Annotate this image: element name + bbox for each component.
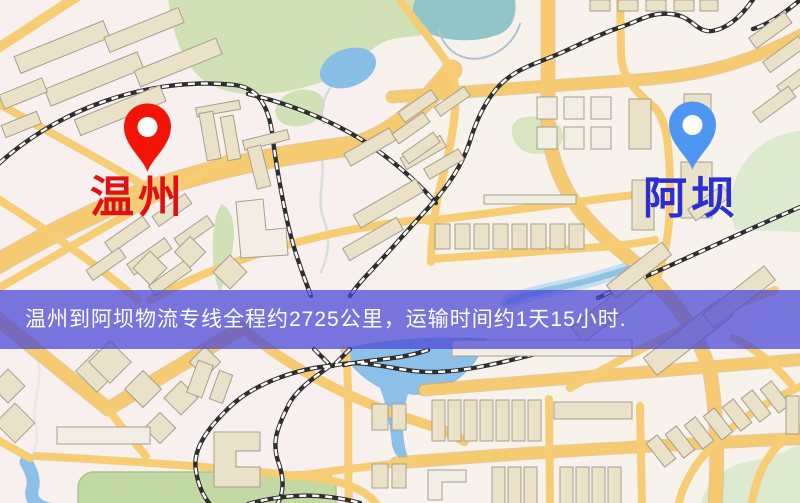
street-map[interactable] bbox=[0, 0, 800, 503]
origin-city-label: 温州 bbox=[90, 176, 186, 220]
map-canvas[interactable]: 温州 阿坝 温州到阿坝物流专线全程约2725公里，运输时间约1天15小时. bbox=[0, 0, 800, 503]
origin-pin-icon[interactable] bbox=[119, 101, 176, 175]
origin-pin-body bbox=[124, 104, 171, 173]
origin-pin-hole bbox=[138, 117, 158, 137]
destination-pin-icon[interactable] bbox=[664, 99, 721, 173]
route-info-banner: 温州到阿坝物流专线全程约2725公里，运输时间约1天15小时. bbox=[0, 290, 800, 349]
destination-city-label: 阿坝 bbox=[643, 177, 739, 221]
destination-pin-body bbox=[669, 102, 716, 171]
destination-pin-hole bbox=[683, 115, 703, 135]
